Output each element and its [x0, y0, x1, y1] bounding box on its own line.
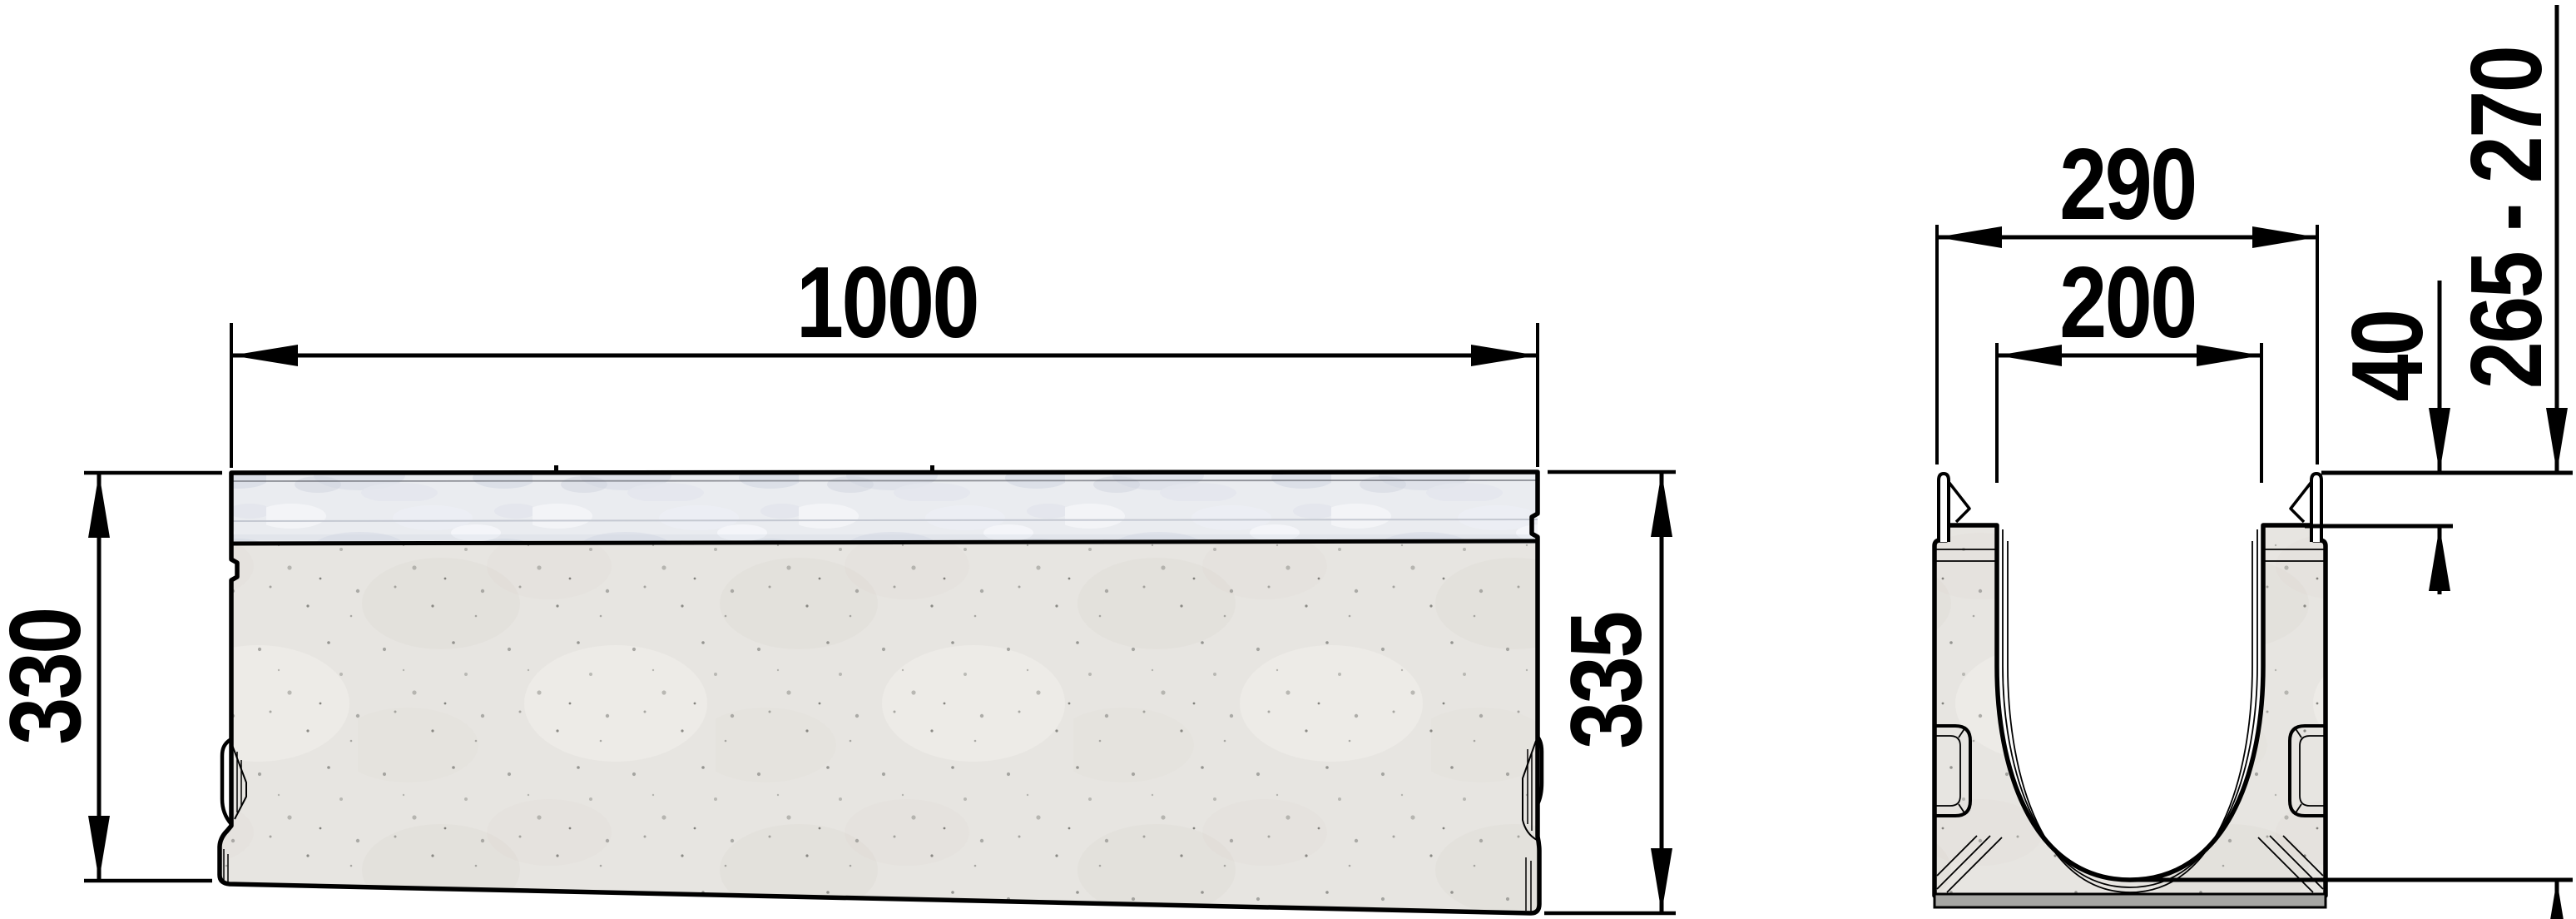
dim-200-arrow-right — [2197, 345, 2261, 366]
dim-335-arrow-top — [1651, 472, 1672, 537]
dim-label-edge-depth: 40 — [2331, 311, 2444, 402]
drawing-sheet: 1000 330 335 — [0, 0, 2576, 919]
rail-right-hook — [2291, 482, 2311, 522]
rail-joint-nick — [554, 465, 558, 474]
dim-label-inner-width: 200 — [2059, 246, 2195, 359]
dim-335-arrow-bottom — [1651, 848, 1672, 913]
dim-label-height-left: 330 — [0, 609, 102, 744]
dim-length-arrow-left — [231, 345, 298, 366]
galvanized-edge-band — [231, 474, 1538, 544]
dim-200-arrow-left — [1997, 345, 2062, 366]
dim-265-arrow-down — [2546, 408, 2568, 473]
elevation-view: 1000 330 335 — [0, 246, 1676, 913]
rail-left-profile — [1939, 474, 1949, 542]
dim-40-arrow-down — [2429, 408, 2450, 473]
dim-265-arrow-up — [2546, 880, 2568, 919]
dim-inner-width: 200 — [1997, 246, 2261, 483]
channel-drawing: 1000 330 335 — [0, 0, 2576, 919]
dim-length-arrow-right — [1471, 345, 1538, 366]
dim-330-arrow-bottom — [88, 816, 110, 881]
dim-depth-range: 265 - 270 — [2137, 5, 2573, 919]
dim-40-arrow-up — [2429, 526, 2450, 591]
dim-330-arrow-top — [88, 473, 110, 538]
dim-height-right: 335 — [1544, 472, 1676, 913]
dim-height-left: 330 — [0, 473, 222, 881]
section-base-strip — [1934, 894, 2326, 907]
dim-label-height-right: 335 — [1549, 613, 1662, 749]
rail-left-hook — [1949, 482, 1969, 522]
dim-label-length: 1000 — [796, 246, 978, 359]
dim-length: 1000 — [231, 246, 1538, 468]
band-bottom-line — [231, 541, 1538, 544]
band-inner-top-line — [231, 480, 1538, 481]
dim-290-arrow-right — [2252, 226, 2317, 248]
section-concrete-speckles — [1934, 525, 2326, 896]
rail-right-profile — [2311, 474, 2321, 542]
rail-joint-nick — [930, 465, 934, 474]
dim-290-arrow-left — [1937, 226, 2002, 248]
dim-label-outer-width: 290 — [2059, 127, 2195, 241]
dim-label-depth-range: 265 - 270 — [2450, 47, 2563, 389]
section-view: 290 200 40 265 - 270 — [1934, 5, 2573, 919]
